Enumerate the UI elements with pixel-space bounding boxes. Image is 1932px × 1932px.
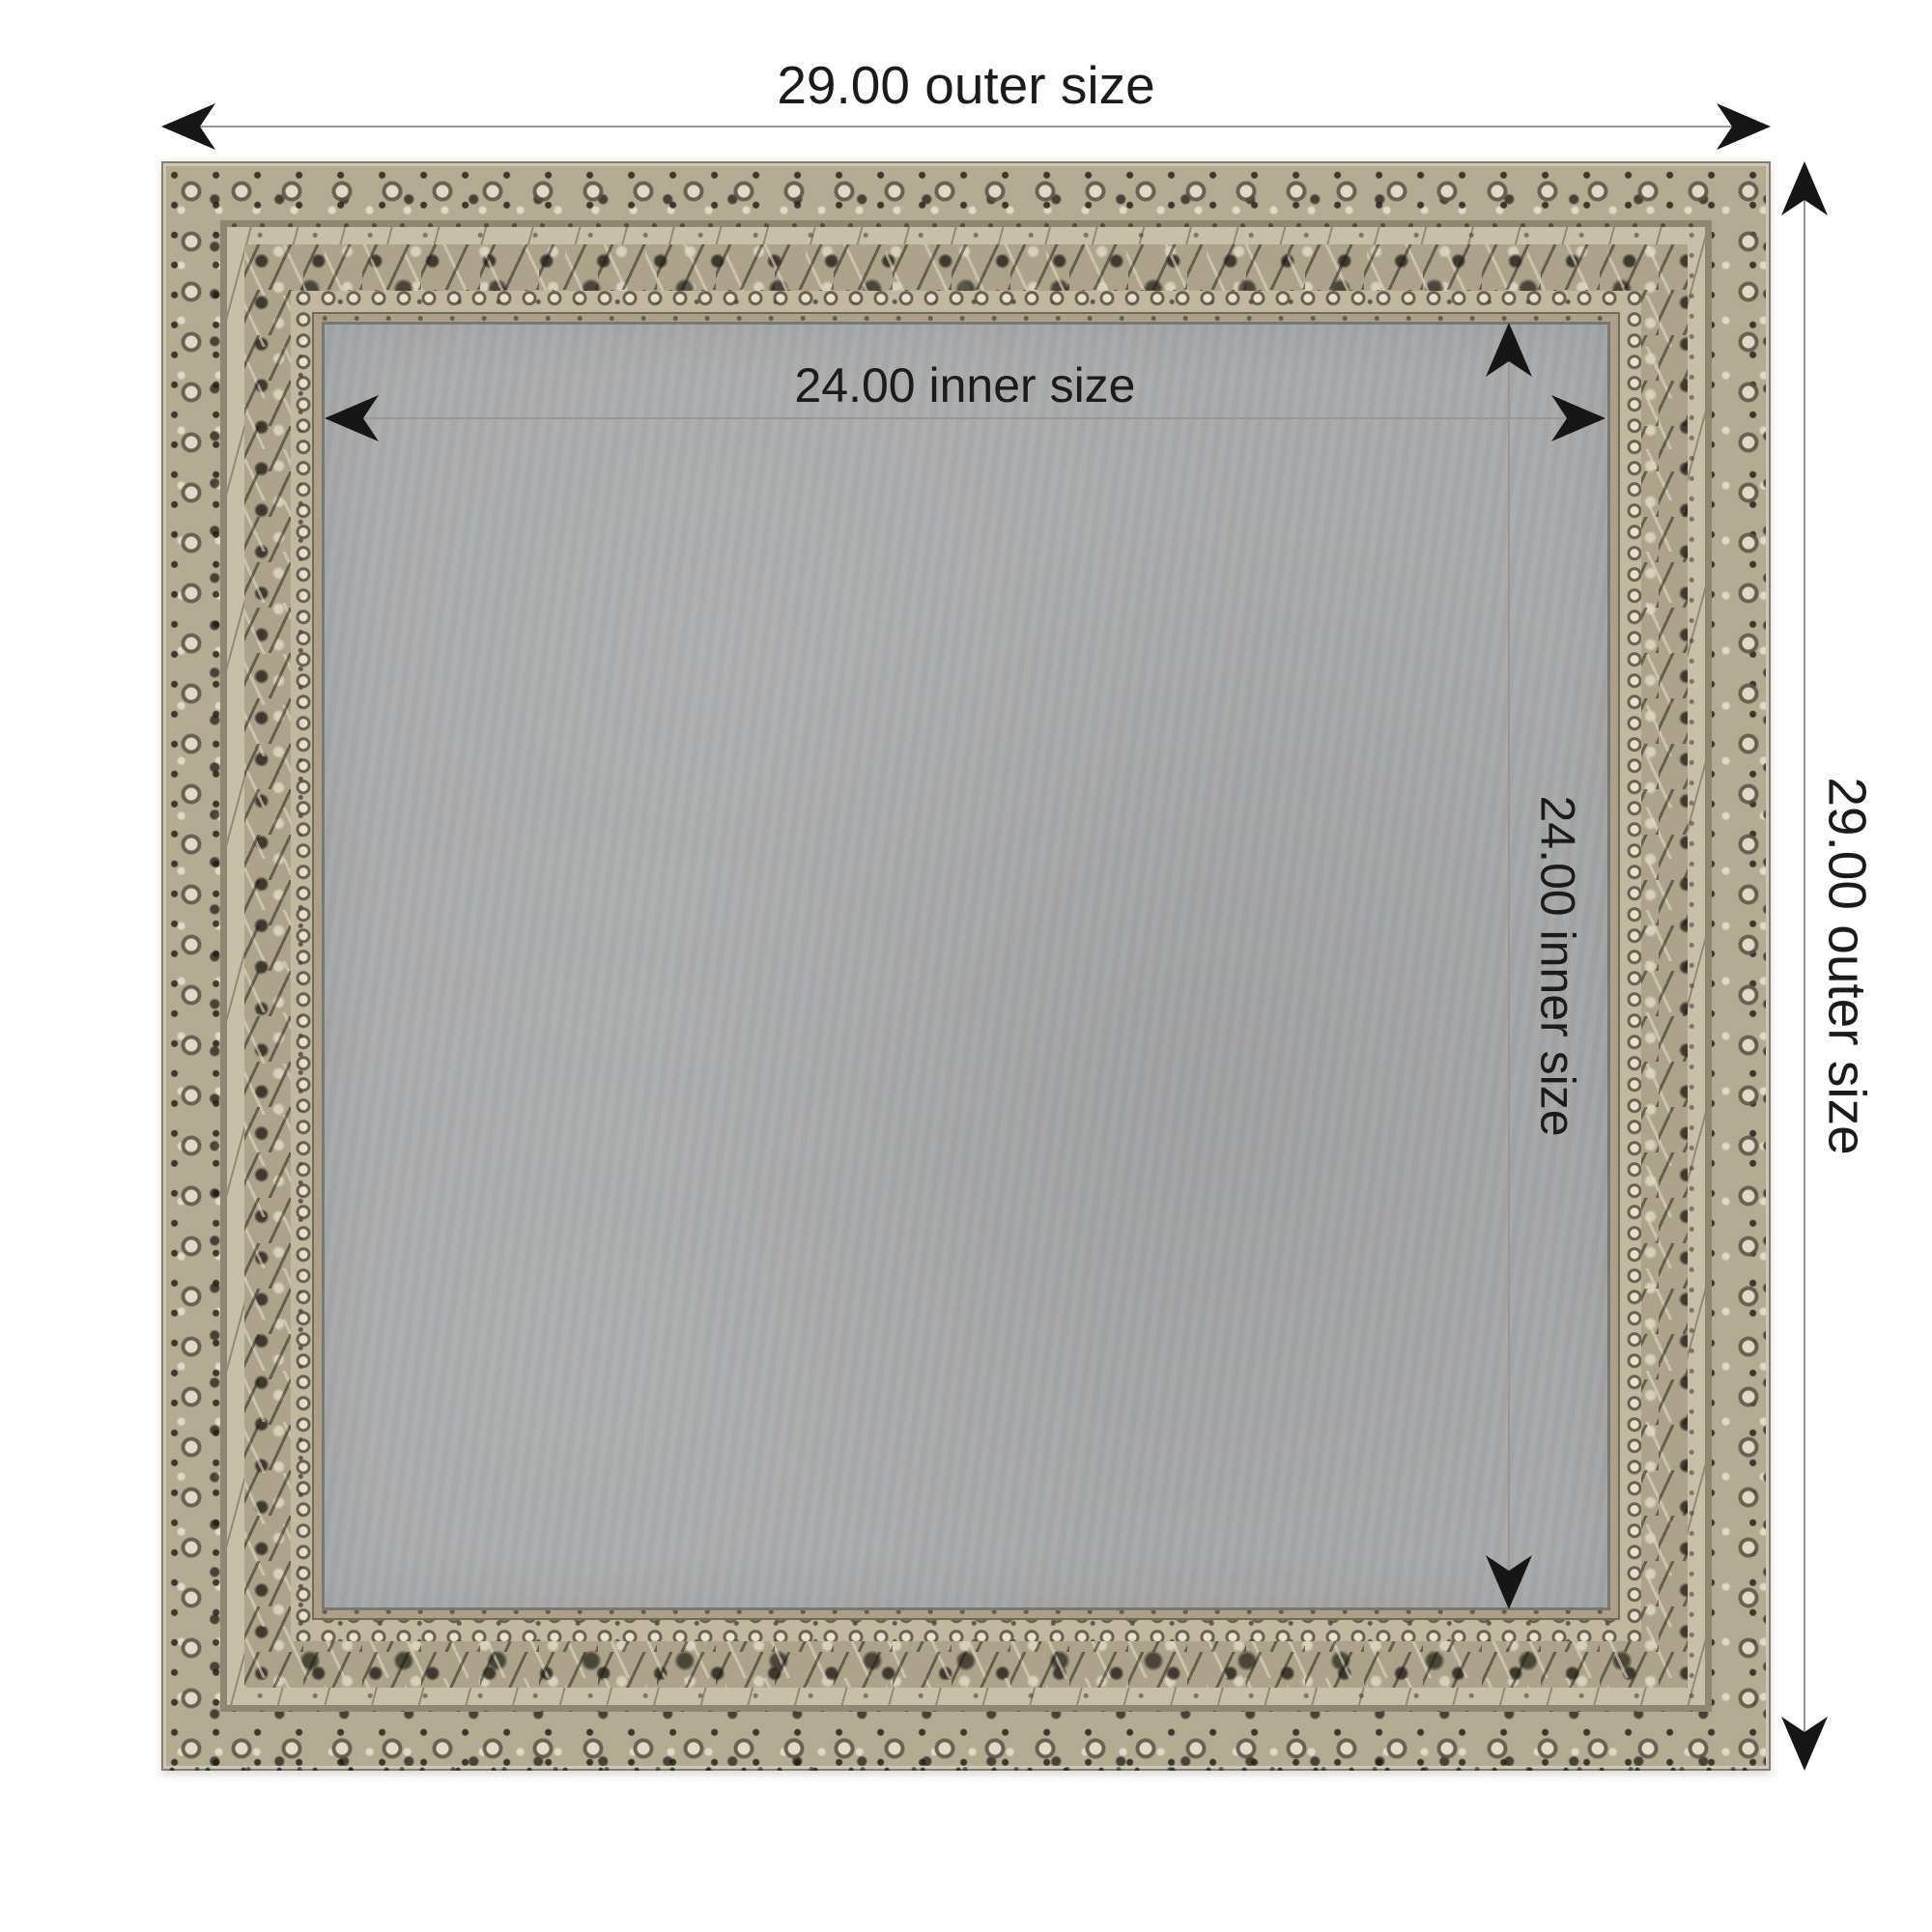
outer-height-label: 29.00 outer size: [1818, 777, 1877, 1154]
inner-height-label: 24.00 inner size: [1531, 795, 1584, 1136]
product-dimension-diagram: 29.00 outer size 24.00 inner size 29.00 …: [0, 0, 1932, 1932]
magnetic-board-surface: [322, 322, 1610, 1610]
frame-band-scroll: [244, 244, 1688, 1688]
frame-inner-lip: [312, 312, 1620, 1620]
arrow-up-icon: [1781, 161, 1828, 215]
inner-width-label: 24.00 inner size: [325, 359, 1605, 412]
frame-band-eggdart: [291, 291, 1641, 1641]
arrow-down-icon: [1781, 1717, 1828, 1771]
frame-groove: [220, 220, 1712, 1712]
outer-width-label: 29.00 outer size: [161, 56, 1771, 115]
frame-band-smooth: [227, 227, 1705, 1705]
